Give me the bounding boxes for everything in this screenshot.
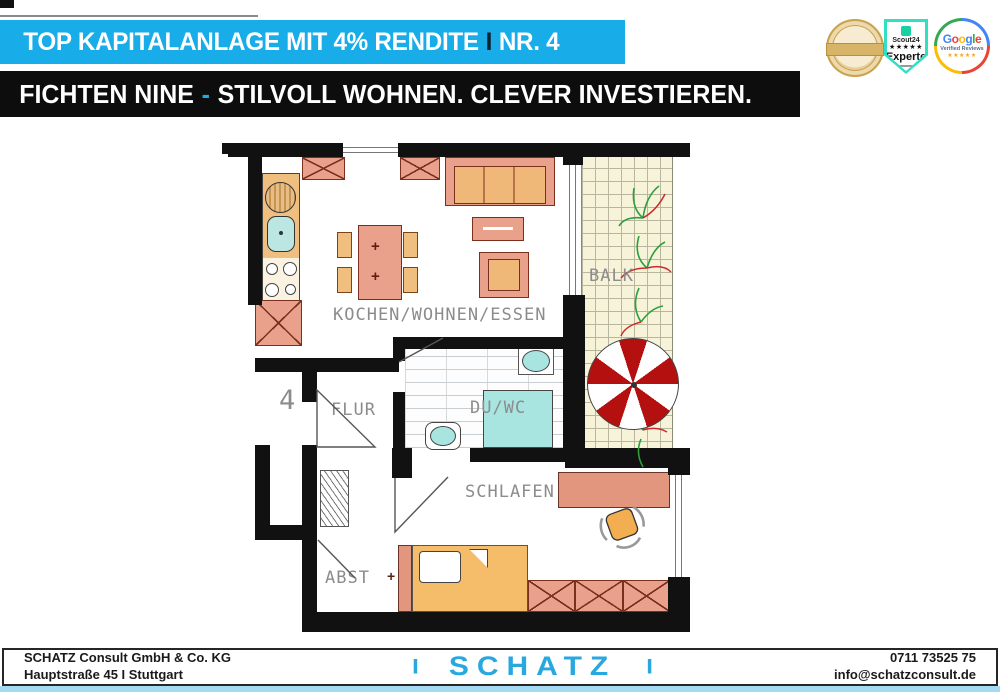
- room-label-balcony: BALK: [589, 266, 634, 286]
- wardrobe-section: [575, 580, 622, 612]
- schatz-logo: I SCHATZ I: [412, 652, 653, 683]
- logo-left-bar: I: [412, 654, 419, 679]
- footer-email: info@schatzconsult.de: [834, 667, 976, 684]
- bed-marker: +: [387, 568, 395, 584]
- pillow: [419, 551, 461, 583]
- sub-banner-text: FICHTEN NINE-STILVOLL WOHNEN. CLEVER INV…: [0, 79, 752, 110]
- scan-artifact-corner: [0, 0, 14, 8]
- office-chair: [596, 502, 648, 550]
- dining-chair: [403, 267, 418, 293]
- wall: [255, 525, 317, 540]
- room-label-bedroom: SCHLAFEN: [465, 482, 555, 502]
- gold-seal-badge: [826, 19, 884, 77]
- storage-hatch-element: [320, 470, 349, 527]
- top-banner-number: NR. 4: [499, 28, 560, 56]
- immoscout-fine-print: [897, 65, 915, 67]
- google-reviews-badge: Google Verified Reviews ★★★★★: [934, 18, 990, 74]
- wardrobe: [528, 580, 670, 612]
- stove: [263, 258, 299, 300]
- wall: [393, 349, 405, 361]
- burner: [285, 284, 296, 295]
- top-banner-separator: I: [479, 28, 499, 56]
- wall-cabinet-xbox: [400, 157, 440, 180]
- burner: [265, 283, 279, 297]
- wall: [255, 358, 399, 372]
- armchair-seat: [488, 259, 520, 291]
- room-label-bath: DU/WC: [470, 398, 526, 418]
- sub-banner-dash: -: [194, 79, 218, 109]
- room-label-storage: ABST: [325, 568, 370, 588]
- immoscout-brand: Scout24: [892, 37, 919, 44]
- footer: SCHATZ Consult GmbH & Co. KG Hauptstraße…: [2, 648, 998, 686]
- room-label-kitchen-living: KOCHEN/WOHNEN/ESSEN: [333, 305, 546, 325]
- footer-company: SCHATZ Consult GmbH & Co. KG: [24, 650, 231, 667]
- immoscout-experte-badge: Scout24 ★★★★★ Experte: [884, 19, 928, 74]
- top-banner-main: TOP KAPITALANLAGE MIT 4% RENDITE: [23, 28, 479, 56]
- wall-left: [248, 143, 262, 305]
- sofa: [445, 157, 555, 206]
- wall-cabinet-xbox: [302, 157, 345, 180]
- sub-banner-slogan: STILVOLL WOHNEN. CLEVER INVESTIEREN.: [218, 79, 752, 109]
- scan-artifact-line: [0, 15, 258, 17]
- unit-number: 4: [279, 385, 296, 416]
- toilet: [518, 347, 554, 375]
- wall-bath-top: [393, 337, 585, 349]
- blanket-fold: [469, 549, 488, 568]
- footer-contact-block: 0711 73525 75 info@schatzconsult.de: [834, 650, 976, 684]
- window-bedroom: [671, 475, 687, 577]
- window-top: [343, 143, 398, 157]
- footer-phone: 0711 73525 75: [834, 650, 976, 667]
- google-logo: Google: [943, 33, 981, 45]
- coffee-table: [472, 217, 524, 241]
- wall-bottom: [302, 612, 682, 632]
- washbasin-bowl: [430, 426, 456, 446]
- dining-chair: [337, 267, 352, 293]
- footer-company-block: SCHATZ Consult GmbH & Co. KG Hauptstraße…: [24, 650, 231, 684]
- room-label-hall: FLUR: [331, 400, 376, 420]
- dining-table: + +: [358, 225, 402, 300]
- dining-chair: [403, 232, 418, 258]
- wall: [563, 295, 585, 455]
- wall: [393, 392, 405, 448]
- wall: [255, 445, 270, 525]
- wardrobe-section: [528, 580, 575, 612]
- washbasin: [425, 422, 461, 450]
- burner: [283, 262, 297, 276]
- table-marker: +: [371, 268, 380, 285]
- wall: [302, 372, 317, 402]
- google-badge-inner: Google Verified Reviews ★★★★★: [937, 21, 987, 71]
- bed: [412, 545, 528, 612]
- kitchen-cabinet-xbox: [255, 300, 302, 346]
- floorplan: + + +: [215, 140, 695, 640]
- table-marker: +: [371, 238, 380, 255]
- wall: [302, 540, 317, 612]
- immoscout-label: Experte: [886, 51, 926, 63]
- immoscout-badge-inner: Scout24 ★★★★★ Experte: [887, 22, 925, 71]
- sub-banner: FICHTEN NINE-STILVOLL WOHNEN. CLEVER INV…: [0, 71, 800, 117]
- burner: [266, 263, 278, 275]
- dining-chair: [337, 232, 352, 258]
- top-banner: TOP KAPITALANLAGE MIT 4% RENDITEINR. 4: [0, 20, 625, 64]
- balcony-door-window: [565, 165, 581, 295]
- wall: [392, 448, 412, 478]
- wall-top: [228, 143, 690, 157]
- armchair: [479, 252, 529, 298]
- bed-headboard: +: [398, 545, 412, 612]
- logo-right-bar: I: [646, 654, 653, 679]
- toilet-bowl: [522, 350, 550, 372]
- google-stars: ★★★★★: [947, 52, 976, 59]
- top-banner-text: TOP KAPITALANLAGE MIT 4% RENDITEINR. 4: [0, 28, 559, 57]
- immoscout-logo-icon: [901, 26, 911, 36]
- parasol: [587, 338, 679, 430]
- footer-address: Hauptstraße 45 I Stuttgart: [24, 667, 231, 684]
- sofa-cushions: [454, 166, 546, 204]
- bottom-accent-strip: [0, 686, 1000, 692]
- logo-name: SCHATZ: [449, 652, 616, 683]
- immoscout-stars: ★★★★★: [889, 44, 923, 51]
- sink-drainer: [265, 182, 296, 213]
- wardrobe-section: [623, 580, 670, 612]
- wall: [563, 157, 583, 165]
- wall: [302, 445, 317, 525]
- sink-basin: [267, 216, 295, 252]
- project-name: FICHTEN NINE: [19, 79, 194, 109]
